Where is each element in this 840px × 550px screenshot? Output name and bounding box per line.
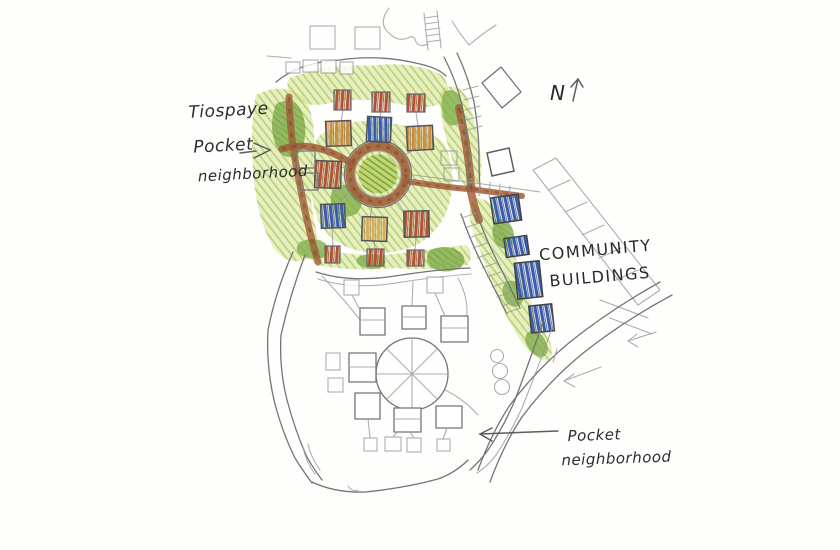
shed-2 [372, 92, 390, 112]
north-label: N [550, 81, 566, 105]
house-blue-1 [366, 116, 391, 142]
bush-cluster [491, 350, 510, 395]
lower-house-1 [360, 308, 385, 335]
label-pocket-line2: neighborhood [561, 448, 672, 470]
community-building-3 [514, 261, 543, 299]
road-west [268, 252, 312, 483]
boundary-bottom [312, 460, 468, 492]
house-orange-2 [406, 125, 433, 150]
lower-house-6 [394, 408, 421, 432]
shed-1 [334, 90, 351, 110]
top-building-2 [355, 27, 380, 49]
road-direction-arrows [553, 332, 656, 387]
label-pocket-line1: Pocket [567, 425, 621, 445]
label-community-line2: BUILDINGS [549, 263, 652, 291]
top-building-1 [310, 26, 335, 49]
plot-square-1 [482, 67, 521, 108]
house-tan-1 [362, 217, 388, 242]
lower-house-7 [436, 406, 462, 428]
label-pocket: Pocket neighborhood [560, 424, 672, 470]
house-red-2 [404, 211, 429, 237]
label-tiospaye-line1: Tiospaye [188, 99, 269, 123]
plot-square-2 [487, 148, 514, 176]
north-arrow-icon [571, 79, 583, 101]
lower-small-sheds [326, 277, 450, 452]
shed-3 [407, 94, 425, 112]
pocket-pointer-arrow-icon [480, 428, 558, 441]
boundary-upper [316, 268, 470, 279]
label-community-line1: COMMUNITY [538, 236, 652, 265]
lower-house-3 [441, 316, 468, 342]
community-building-1 [490, 194, 521, 224]
sketch-page: Tiospaye Pocket neighborhood N COMMUNITY… [0, 0, 840, 550]
community-building-2 [504, 235, 529, 257]
community-building-4 [529, 304, 555, 333]
shed-6 [407, 250, 424, 266]
lower-house-5 [355, 393, 380, 419]
lower-courtyard-circle [376, 338, 448, 410]
dash-top-left [267, 56, 291, 58]
label-tiospaye-line2: Pocket [193, 134, 255, 157]
road-fork-topright [452, 21, 496, 45]
shed-5 [367, 249, 384, 266]
squiggle-line [383, 8, 428, 46]
shed-4 [325, 246, 340, 263]
house-orange-1 [326, 121, 352, 147]
north-marker: N [550, 79, 583, 105]
house-blue-2 [321, 204, 346, 229]
site-plan-sketch: Tiospaye Pocket neighborhood N COMMUNITY… [0, 0, 840, 550]
lower-houses [349, 306, 468, 432]
label-community-buildings: COMMUNITY BUILDINGS [538, 236, 654, 292]
